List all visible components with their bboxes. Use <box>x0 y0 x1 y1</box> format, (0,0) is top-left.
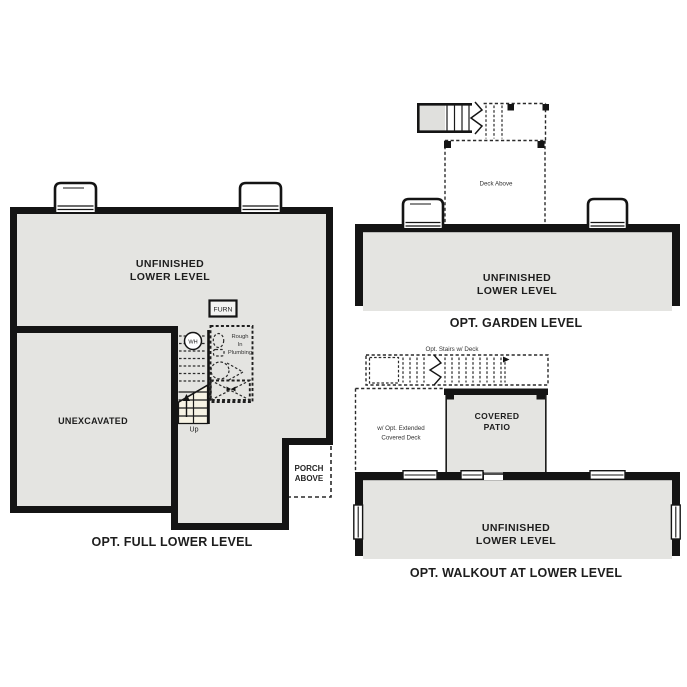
room-label-line1: UNFINISHED <box>136 258 204 270</box>
window-side-right <box>671 505 680 539</box>
plan-full-lower-level: FURN WH Up <box>13 183 331 549</box>
patio-post <box>446 389 455 400</box>
plan-title-walkout: OPT. WALKOUT AT LOWER LEVEL <box>410 566 622 580</box>
window-well-left <box>55 183 96 212</box>
stair-landing-fill <box>419 105 446 132</box>
deck-post <box>538 141 545 148</box>
deck-post <box>508 104 515 111</box>
plan-garden-level: Deck Above UNFINISHED LOWER LEVEL OPT. G… <box>355 102 680 331</box>
window-top-b <box>461 471 483 480</box>
deck-above-label: Deck Above <box>479 181 513 188</box>
patio-post <box>537 389 546 400</box>
stair-break-line <box>430 355 441 385</box>
window-top-a <box>403 471 437 480</box>
window-side-left <box>354 505 363 539</box>
rough-in-label-line2: In <box>238 342 243 348</box>
covered-patio-label-line1: COVERED <box>475 411 520 421</box>
opt-stairs-boundary <box>366 355 548 385</box>
door-opening <box>484 473 503 481</box>
room-label-line2: LOWER LEVEL <box>130 271 210 283</box>
porch-label-line2: ABOVE <box>295 474 324 483</box>
plan-walkout-lower-level: Opt. Stairs w/ Deck <box>354 346 680 580</box>
room-label-line2: LOWER LEVEL <box>477 285 557 297</box>
window-well-outline <box>403 199 443 228</box>
room-area <box>363 480 672 559</box>
rough-in-label-line3: Plumbing <box>228 350 252 356</box>
deck-stairs <box>418 102 483 135</box>
covered-patio-label-line2: PATIO <box>484 422 511 432</box>
window-well-outline <box>240 183 281 212</box>
covered-patio: COVERED PATIO <box>444 389 548 475</box>
band-wall-left <box>355 224 363 306</box>
extended-deck-label-line2: Covered Deck <box>381 435 421 442</box>
room-label-line1: UNFINISHED <box>483 272 551 284</box>
stair-direction-arrow <box>503 357 510 363</box>
covered-patio-area <box>445 390 547 474</box>
furnace-label: FURN <box>214 307 233 314</box>
stair-treads-dashed <box>403 358 501 383</box>
stair-treads-dashed-upper <box>486 106 502 139</box>
room-label-line1: UNFINISHED <box>482 522 550 534</box>
room-label-line2: LOWER LEVEL <box>476 535 556 547</box>
stair-landing-dashed <box>370 358 399 384</box>
band-wall-right <box>672 224 680 306</box>
porch-label-line1: PORCH <box>295 464 324 473</box>
covered-patio-wall <box>444 389 548 396</box>
window-top-c <box>590 471 625 480</box>
deck-post <box>543 104 550 111</box>
window-well-outline <box>588 199 627 228</box>
rough-in-label-line1: Rough <box>231 334 248 340</box>
floorplan-sheet: FURN WH Up <box>0 0 687 687</box>
floorplan-canvas: FURN WH Up <box>0 0 687 687</box>
stair-up-label: Up <box>190 427 199 434</box>
plan-title-garden: OPT. GARDEN LEVEL <box>450 316 583 330</box>
window-well-right <box>588 199 627 228</box>
porch-above: PORCH ABOVE <box>289 446 331 497</box>
window-well-outline <box>55 183 96 212</box>
deck-post <box>444 141 451 148</box>
opt-stairs-label: Opt. Stairs w/ Deck <box>426 346 480 353</box>
stair-break-gap <box>472 102 483 135</box>
window-well-left <box>403 199 443 228</box>
extended-deck-label-line1: w/ Opt. Extended <box>376 425 425 432</box>
plan-title-full: OPT. FULL LOWER LEVEL <box>92 535 253 549</box>
unexcavated-label: UNEXCAVATED <box>58 416 128 426</box>
window-well-right <box>240 183 281 212</box>
water-heater-label: WH <box>188 339 197 345</box>
